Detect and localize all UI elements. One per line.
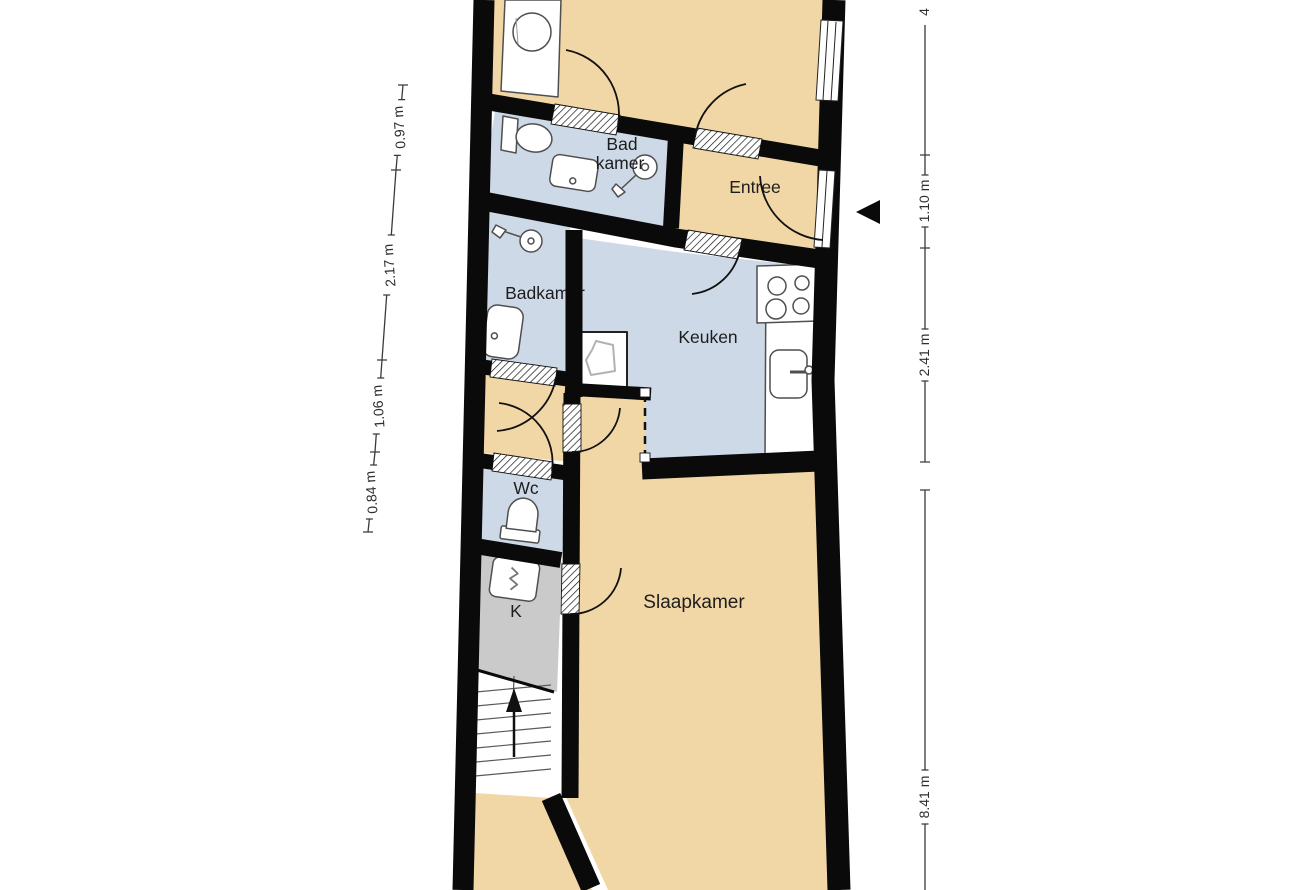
- dimension-label: 1.06 m: [369, 384, 388, 428]
- floorplan-page: Bad kamer Entree Badkamer Keuken Wc K Sl…: [0, 0, 1300, 890]
- dimension-right: [920, 25, 930, 890]
- entrance-arrow-icon: [856, 200, 880, 224]
- room-label-bad-kamer: Bad: [606, 134, 637, 154]
- dimension-label: 0.84 m: [362, 470, 381, 514]
- wall-keuken-bottom: [642, 461, 819, 469]
- dimension-label: 0.97 m: [390, 105, 409, 149]
- kitchen-sink-icon: [770, 350, 813, 398]
- dimension-label: 2.41 m: [916, 334, 932, 377]
- dimension-label: 1.10 m: [916, 180, 932, 223]
- room-label-keuken: Keuken: [678, 327, 737, 347]
- door-threshold: [563, 404, 581, 452]
- room-label-wc: Wc: [513, 478, 539, 498]
- sink-icon: [482, 304, 525, 361]
- kitchen-counter: [757, 264, 819, 459]
- door-threshold: [561, 564, 580, 614]
- dimension-label: 8.41 m: [916, 776, 932, 819]
- stove-icon: [757, 264, 819, 323]
- room-label-entree: Entree: [729, 177, 781, 197]
- dimension-left: [363, 85, 408, 532]
- dimension-right-labels: 4 1.10 m 2.41 m 8.41 m: [916, 8, 932, 819]
- room-label-k: K: [510, 601, 522, 621]
- floor-plan-svg: Bad kamer Entree Badkamer Keuken Wc K Sl…: [0, 0, 1300, 890]
- wall-badkamer-entree: [671, 136, 676, 228]
- dimension-label: 2.17 m: [380, 243, 399, 287]
- room-label-slaapkamer: Slaapkamer: [643, 592, 745, 613]
- dimension-label-truncated: 4: [916, 8, 932, 16]
- room-label-bad-kamer: kamer: [596, 153, 645, 173]
- sink-icon: [549, 154, 599, 193]
- shower-tray-icon: [501, 0, 561, 97]
- wall-right-outer: [823, 0, 839, 890]
- window: [816, 20, 843, 101]
